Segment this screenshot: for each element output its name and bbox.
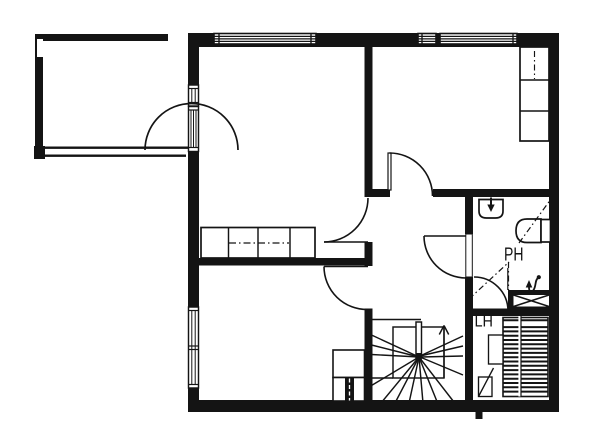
svg-text:LH: LH (475, 314, 494, 331)
svg-text:PH: PH (504, 245, 524, 265)
